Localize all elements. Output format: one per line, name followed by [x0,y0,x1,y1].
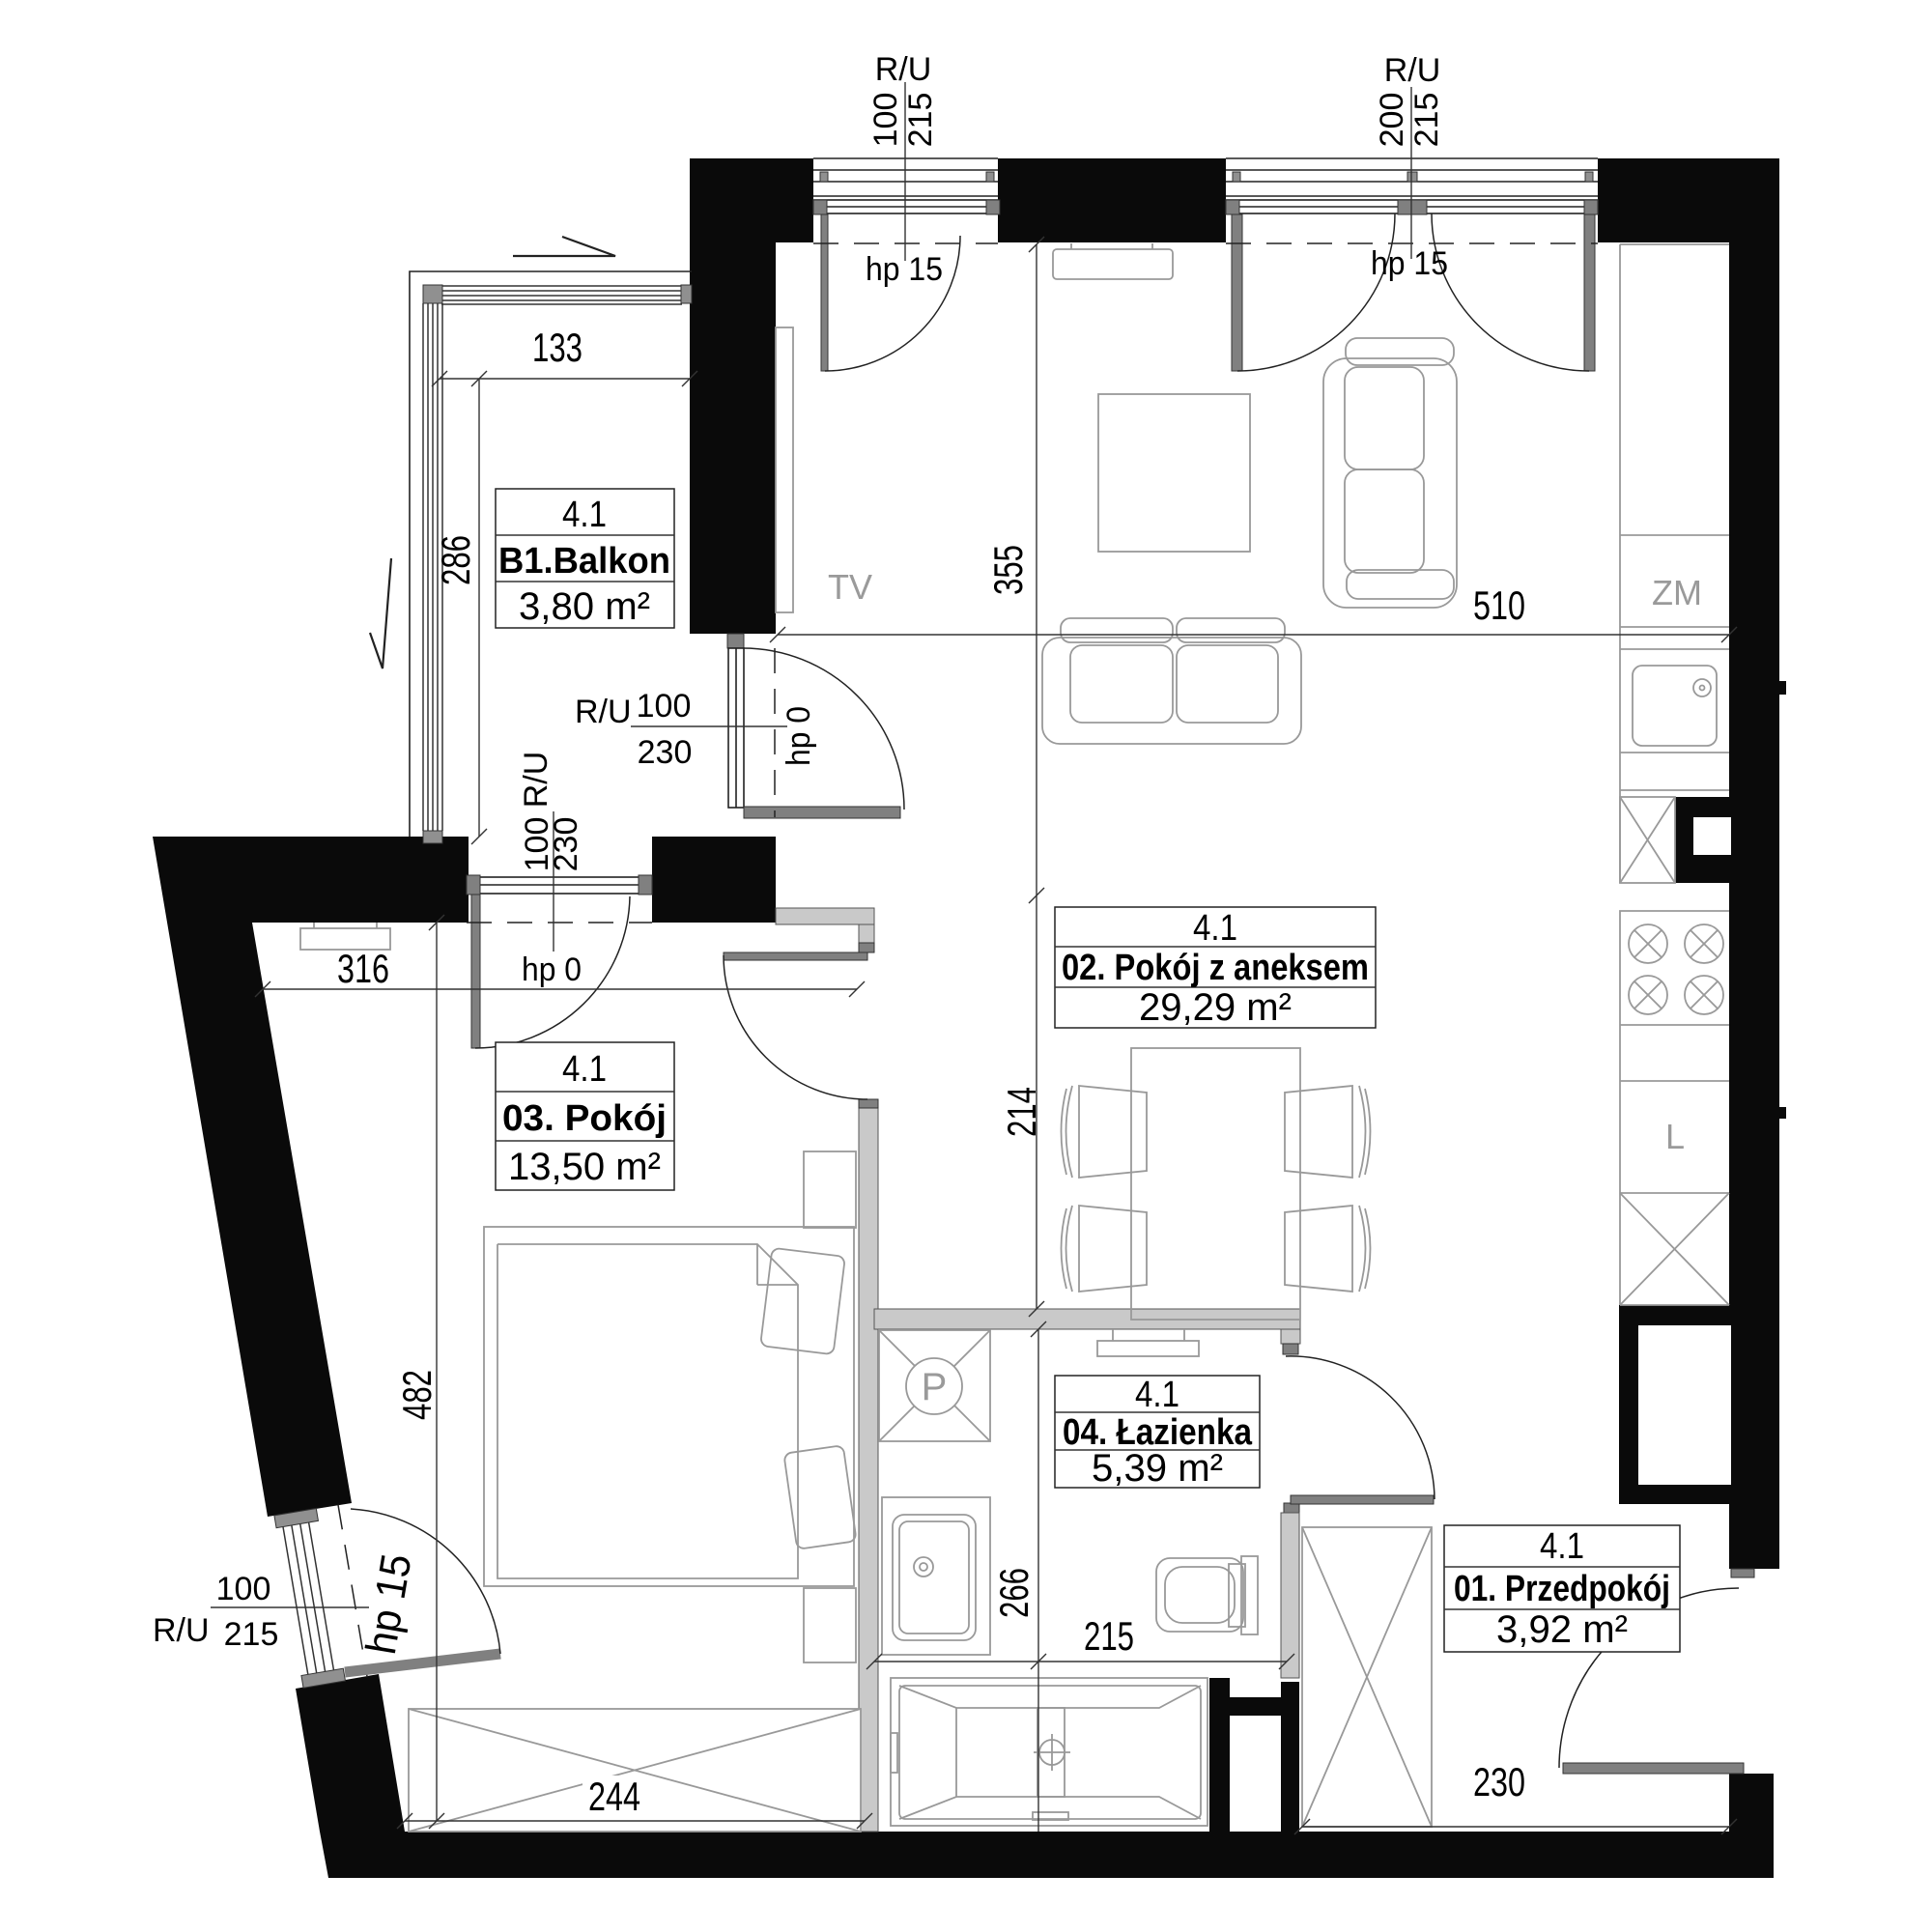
svg-text:R/U: R/U [518,752,554,809]
svg-text:482: 482 [394,1370,440,1420]
svg-text:244: 244 [588,1774,640,1819]
svg-text:4.1: 4.1 [1193,908,1237,949]
svg-text:4.1: 4.1 [1135,1375,1179,1415]
svg-text:TV: TV [828,567,872,607]
svg-text:4.1: 4.1 [562,1049,607,1090]
svg-text:5,39 m²: 5,39 m² [1092,1447,1223,1490]
svg-text:01. Przedpokój: 01. Przedpokój [1454,1569,1670,1609]
svg-text:4.1: 4.1 [1540,1526,1584,1567]
svg-text:215: 215 [1408,93,1445,148]
svg-text:133: 133 [532,325,582,370]
svg-text:230: 230 [548,817,584,872]
svg-text:200: 200 [1374,93,1410,148]
svg-text:R/U: R/U [875,51,932,88]
svg-text:100: 100 [867,93,904,148]
svg-text:R/U: R/U [153,1612,210,1649]
svg-text:B1.Balkon: B1.Balkon [498,541,670,582]
svg-text:215: 215 [902,93,939,148]
svg-text:3,80 m²: 3,80 m² [519,585,650,628]
svg-text:13,50 m²: 13,50 m² [508,1146,661,1188]
svg-text:02. Pokój z aneksem: 02. Pokój z aneksem [1062,948,1369,988]
svg-text:P: P [922,1366,948,1408]
svg-text:03. Pokój: 03. Pokój [502,1098,667,1139]
svg-text:hp 15: hp 15 [1371,245,1448,282]
svg-text:29,29 m²: 29,29 m² [1139,986,1292,1029]
svg-text:510: 510 [1473,582,1525,628]
svg-text:3,92 m²: 3,92 m² [1496,1608,1628,1651]
svg-text:hp 0: hp 0 [781,706,817,766]
svg-text:215: 215 [224,1616,279,1653]
svg-text:hp 15: hp 15 [866,251,943,288]
svg-text:100: 100 [216,1571,271,1607]
svg-text:230: 230 [1473,1759,1525,1804]
svg-text:355: 355 [985,545,1031,595]
svg-text:286: 286 [433,535,478,585]
svg-text:230: 230 [638,734,693,771]
svg-text:100: 100 [637,688,692,724]
svg-text:ZM: ZM [1652,573,1702,612]
svg-text:215: 215 [1084,1613,1134,1659]
svg-text:hp 0: hp 0 [522,952,582,988]
svg-text:R/U: R/U [575,694,632,730]
svg-text:214: 214 [999,1087,1044,1137]
svg-text:L: L [1665,1117,1685,1156]
svg-text:316: 316 [337,946,389,991]
svg-text:4.1: 4.1 [562,495,607,535]
svg-text:266: 266 [991,1568,1037,1618]
svg-text:R/U: R/U [1384,52,1441,89]
